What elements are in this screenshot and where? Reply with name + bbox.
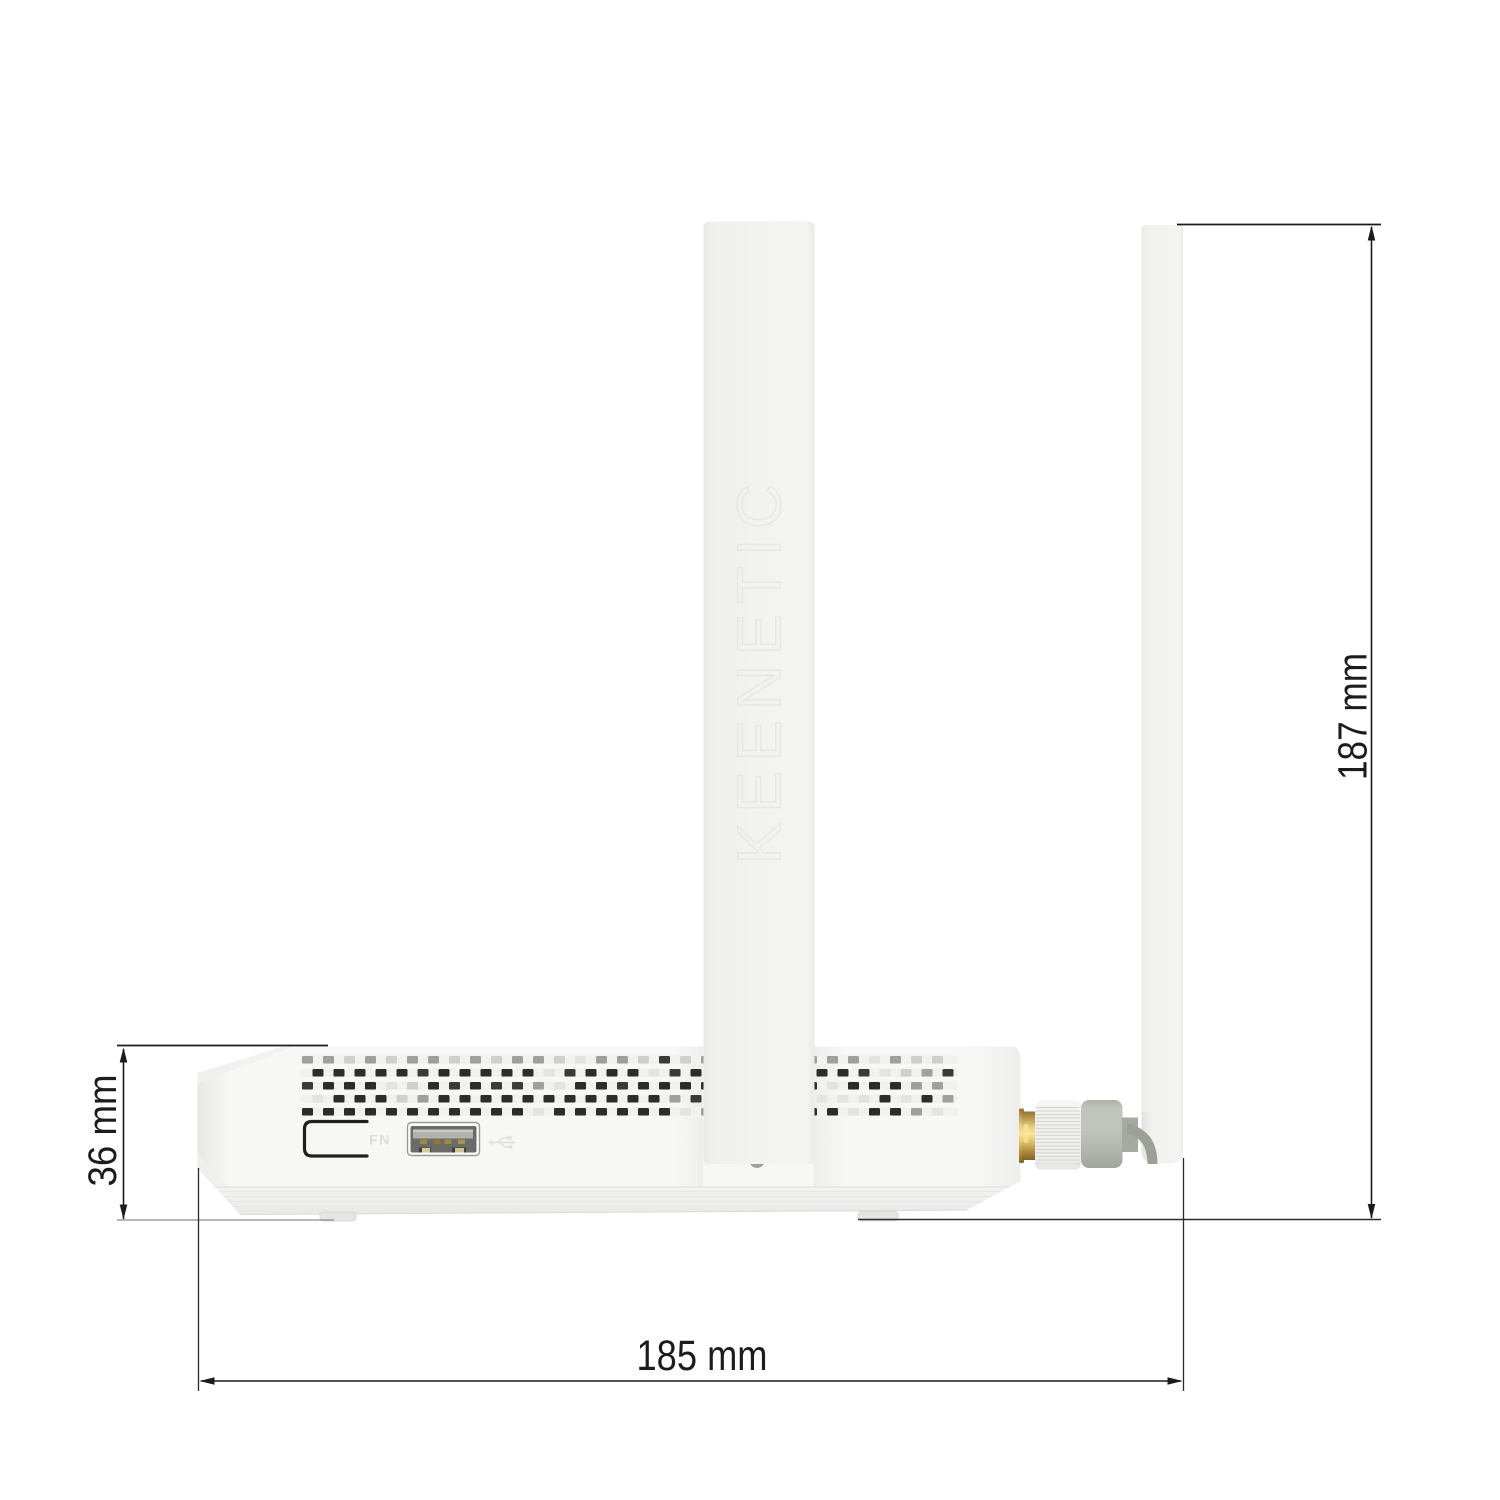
svg-text:36 mm: 36 mm [81, 1075, 125, 1187]
svg-text:FN: FN [369, 1132, 391, 1148]
svg-text:185 mm: 185 mm [637, 1332, 768, 1380]
svg-text:KEENETIC: KEENETIC [725, 474, 794, 864]
svg-text:187 mm: 187 mm [1330, 653, 1376, 780]
